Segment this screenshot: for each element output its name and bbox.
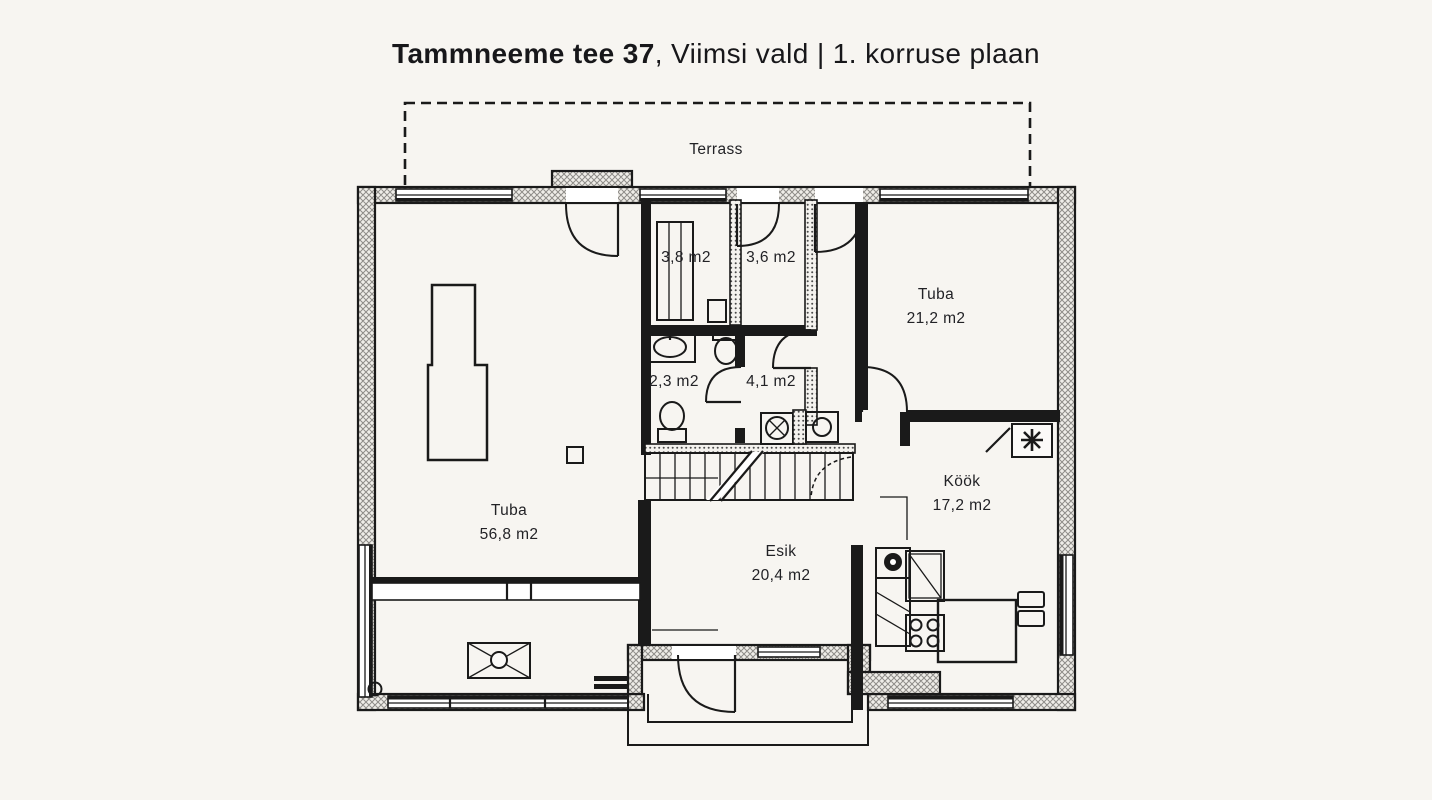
skylight bbox=[468, 643, 530, 678]
window-porch bbox=[758, 647, 820, 657]
room-area: 3,8 m2 bbox=[661, 246, 711, 270]
room-area: 21,2 m2 bbox=[907, 307, 966, 331]
door-living-room bbox=[566, 204, 618, 256]
door-small-room bbox=[737, 204, 779, 246]
room-area: 4,1 m2 bbox=[746, 370, 796, 394]
staircase bbox=[645, 451, 853, 501]
wc-toilet bbox=[658, 402, 686, 442]
window-top-living bbox=[396, 189, 512, 202]
room-label-hallway: Esik 20,4 m2 bbox=[752, 540, 811, 588]
room-label-living-room: Tuba 56,8 m2 bbox=[480, 499, 539, 547]
room-name: Esik bbox=[752, 540, 811, 564]
window-bottom-living bbox=[388, 696, 628, 708]
terrace-label-text: Terrass bbox=[689, 138, 743, 162]
wardrobe bbox=[657, 222, 726, 322]
kitchen-counter bbox=[876, 497, 910, 646]
column bbox=[567, 447, 583, 463]
stair-swing-line bbox=[811, 457, 851, 498]
room-area: 3,6 m2 bbox=[746, 246, 796, 270]
room-name: Tuba bbox=[480, 499, 539, 523]
window-top-closet bbox=[640, 189, 726, 202]
room-label-wc: 2,3 m2 bbox=[649, 370, 699, 394]
floor-plan-page: Tammneeme tee 37, Viimsi vald | 1. korru… bbox=[0, 0, 1432, 800]
kitchen-island bbox=[938, 592, 1044, 662]
entrance-steps bbox=[628, 694, 868, 745]
exterior-walls bbox=[358, 171, 1075, 710]
washing-machine bbox=[761, 413, 793, 444]
room-label-bathroom: 4,1 m2 bbox=[746, 370, 796, 394]
fridge bbox=[906, 551, 944, 601]
fireplace bbox=[428, 285, 487, 460]
room-label-bedroom: Tuba 21,2 m2 bbox=[907, 283, 966, 331]
room-label-small-room: 3,6 m2 bbox=[746, 246, 796, 270]
room-area: 56,8 m2 bbox=[480, 523, 539, 547]
room-name: Köök bbox=[933, 470, 992, 494]
wc-sink bbox=[647, 333, 695, 362]
window-left-living bbox=[359, 545, 373, 697]
door-wc bbox=[706, 367, 741, 402]
window-right-kitchen bbox=[1060, 555, 1073, 655]
room-label-kitchen: Köök 17,2 m2 bbox=[933, 470, 992, 518]
room-area: 20,4 m2 bbox=[752, 564, 811, 588]
floor-plan-drawing bbox=[0, 0, 1432, 800]
kitchen-sink bbox=[876, 548, 910, 578]
window-top-bedroom bbox=[880, 189, 1028, 202]
terrace-label: Terrass bbox=[689, 138, 743, 162]
room-label-closet: 3,8 m2 bbox=[661, 246, 711, 270]
room-area: 2,3 m2 bbox=[649, 370, 699, 394]
bath-partition bbox=[793, 410, 806, 444]
room-name: Tuba bbox=[907, 283, 966, 307]
door-bedroom-bottom bbox=[862, 367, 907, 412]
window-bottom-kitchen bbox=[888, 696, 1013, 708]
door-entrance bbox=[678, 655, 735, 712]
interior-walls bbox=[372, 200, 1060, 710]
room-area: 17,2 m2 bbox=[933, 494, 992, 518]
chimney-star-icon bbox=[986, 424, 1052, 457]
